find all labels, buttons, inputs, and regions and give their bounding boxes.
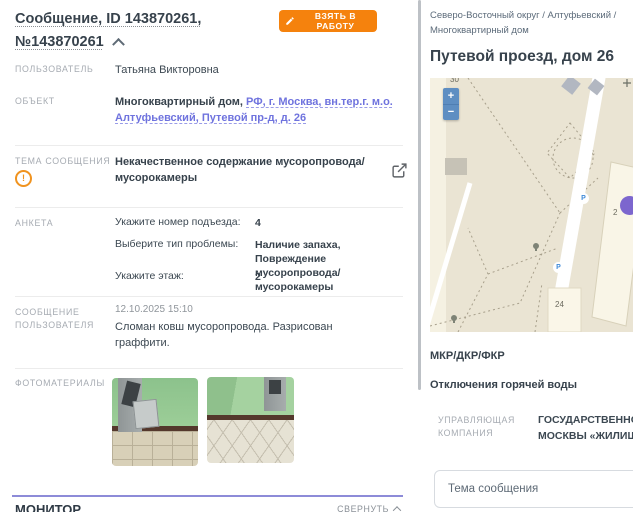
map-base bbox=[430, 78, 633, 332]
anketa-answer: 4 bbox=[255, 216, 405, 230]
object-type: Многоквартирный дом, bbox=[115, 96, 243, 108]
topic-field-label: ТЕМА СООБЩЕНИЯ bbox=[15, 156, 110, 166]
topic-input[interactable] bbox=[434, 470, 633, 508]
photo-thumbnail[interactable] bbox=[112, 378, 198, 466]
anketa-answer: Наличие запаха, Повреждение мусоропровод… bbox=[255, 238, 407, 294]
user-field-label: ПОЛЬЗОВАТЕЛЬ bbox=[15, 64, 94, 74]
monitor-section-title: МОНИТОР bbox=[15, 502, 81, 512]
divider bbox=[15, 145, 403, 146]
page: Сообщение, ID 143870261, №143870261 ВЗЯТ… bbox=[0, 0, 633, 512]
anketa-field-label: АНКЕТА bbox=[15, 218, 53, 228]
tree-icon bbox=[451, 315, 457, 321]
map-building-label: 2 bbox=[613, 208, 617, 217]
map[interactable]: + − P P 24 30 2 bbox=[430, 78, 633, 332]
management-company-label: УПРАВЛЯЮЩАЯ КОМПАНИЯ bbox=[438, 414, 518, 440]
management-company-line2: МОСКВЫ «ЖИЛИЩНИК» bbox=[538, 428, 633, 444]
zoom-in-button[interactable]: + bbox=[443, 88, 459, 104]
divider bbox=[15, 368, 403, 369]
take-to-work-label: ВЗЯТЬ В РАБОТУ bbox=[300, 11, 371, 31]
map-building-label: 30 bbox=[450, 78, 459, 84]
object-title: Путевой проезд, дом 26 bbox=[430, 48, 614, 66]
user-message-text: Сломан ковш мусоропровода. Разрисован гр… bbox=[115, 319, 360, 351]
photo-floor bbox=[207, 420, 294, 463]
user-message-label: СООБЩЕНИЕ ПОЛЬЗОВАТЕЛЯ bbox=[15, 306, 100, 332]
user-message-datetime: 12.10.2025 15:10 bbox=[115, 304, 193, 315]
section-mkr[interactable]: МКР/ДКР/ФКР bbox=[430, 350, 505, 362]
broken-hopper bbox=[133, 399, 160, 429]
parking-icon: P bbox=[553, 262, 564, 273]
pencil-icon bbox=[285, 16, 295, 26]
object-field-value: Многоквартирный дом, РФ, г. Москва, вн.т… bbox=[115, 94, 407, 126]
tree-icon bbox=[533, 243, 539, 249]
chevron-up-icon[interactable] bbox=[112, 38, 125, 51]
management-company-value: ГОСУДАРСТВЕННОЕ БЮДЖЕТНОЕ МОСКВЫ «ЖИЛИЩН… bbox=[538, 412, 633, 444]
zoom-out-button[interactable]: − bbox=[443, 104, 459, 120]
section-divider bbox=[12, 495, 403, 497]
open-external-icon[interactable] bbox=[391, 162, 408, 179]
divider bbox=[15, 296, 403, 297]
anketa-answer: 2 bbox=[255, 270, 405, 284]
map-building-label: 24 bbox=[555, 300, 564, 309]
chevron-up-icon bbox=[393, 506, 401, 512]
anketa-question: Выберите тип проблемы: bbox=[115, 238, 250, 250]
photo-thumbnail[interactable] bbox=[207, 377, 294, 463]
take-to-work-button[interactable]: ВЗЯТЬ В РАБОТУ bbox=[279, 10, 377, 32]
scrollbar[interactable] bbox=[418, 0, 421, 390]
topic-field-value: Некачественное содержание мусоропровода/… bbox=[115, 154, 373, 186]
breadcrumb: Северо-Восточный округ / Алтуфьевский / … bbox=[430, 8, 626, 38]
collapse-button[interactable]: СВЕРНУТЬ bbox=[337, 504, 400, 512]
photo-floor bbox=[112, 431, 198, 466]
warning-icon: ! bbox=[15, 170, 32, 187]
parking-icon: P bbox=[578, 193, 589, 204]
section-hot-water[interactable]: Отключения горячей воды bbox=[430, 379, 577, 391]
user-field-value: Татьяна Викторовна bbox=[115, 62, 219, 78]
anketa-question: Укажите этаж: bbox=[115, 270, 250, 282]
object-map-marker[interactable] bbox=[620, 196, 633, 215]
photos-field-label: ФОТОМАТЕРИАЛЫ bbox=[15, 378, 105, 388]
chute-opening bbox=[269, 380, 281, 394]
message-title-text: Сообщение, ID 143870261, №143870261 bbox=[15, 11, 201, 50]
divider bbox=[15, 207, 403, 208]
message-title[interactable]: Сообщение, ID 143870261, №143870261 bbox=[15, 8, 287, 54]
object-field-label: ОБЪЕКТ bbox=[15, 96, 55, 106]
map-zoom-control: + − bbox=[443, 88, 459, 120]
management-company-line1: ГОСУДАРСТВЕННОЕ БЮДЖЕТНОЕ bbox=[538, 412, 633, 428]
collapse-label: СВЕРНУТЬ bbox=[337, 504, 389, 512]
anketa-question: Укажите номер подъезда: bbox=[115, 216, 250, 228]
